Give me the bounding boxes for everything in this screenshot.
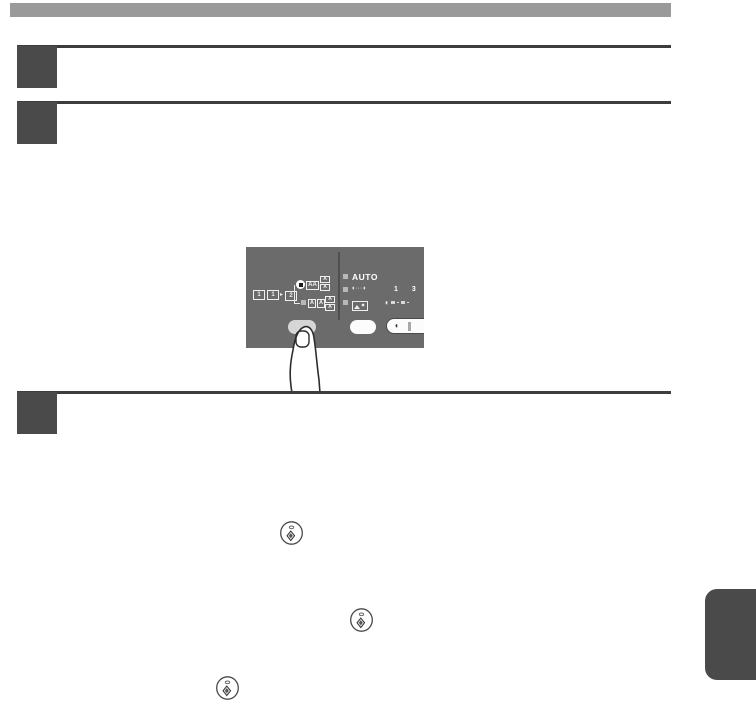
start-key-icon-3 [216,676,239,700]
exposure-scale-glyph: ◖ [384,298,389,307]
sort-mode-box: AA [306,281,319,290]
copy-page-icon-2sided: 2 [285,291,297,301]
step-2-number-square [17,102,57,144]
mode-led-dot [299,283,303,287]
sort-stack-bottom: A A [325,296,335,311]
sort-mode-label: AA [308,282,317,288]
exposure-dot-1 [397,302,399,304]
mode-led-unselected [301,300,306,305]
original-page-2-label: 1 [271,292,274,298]
original-page-1-label: 1 [257,292,260,298]
pressing-finger-illustration [283,322,331,399]
group-mode-a1: A [308,299,316,308]
start-key-icon-2 [350,608,373,632]
auto-led [343,274,348,279]
mode-arrow-icon: ▸ [280,292,283,298]
sort-stack-top: A A [320,276,330,291]
exposure-button-bar [408,322,411,331]
mode-bracket-line [294,285,295,304]
exposure-mark-3 [401,301,405,305]
group-mode-boxes: A A [308,299,325,308]
chapter-page-tab [705,589,756,680]
mode-bracket-stub [294,303,300,304]
auto-mode-label: AUTO [352,272,378,282]
step-1-number-square [17,46,57,88]
exposure-level-numbers: 1 3 [394,286,422,293]
exposure-scale: ◖ [384,298,409,307]
sort-stack-top-a2: A [320,284,330,291]
panel-divider [338,252,340,320]
group-mode-a2: A [317,299,325,308]
sort-stack-top-a1: A [320,276,330,283]
sort-stack-bottom-a2: A [325,304,335,311]
exposure-mark-1 [391,301,395,305]
mode-led-selected [296,280,305,289]
step-3-number-square [17,392,57,434]
photo-mode-icon [352,298,368,316]
manual-exposure-icon: ◖···◗ [351,285,366,292]
sort-stack-bottom-a1: A [325,296,335,303]
exposure-adjust-button: ◖ [386,318,424,334]
manual-led [343,287,348,292]
exposure-mode-button [350,320,376,334]
copier-control-panel-illustration: 1 1 ▸ 2 AA A A A A A A AUTO ◖···◗ 1 3 ◖ [246,247,424,348]
original-page-icon-2: 1 [267,290,279,300]
page-top-bar [10,3,671,17]
copy-page-label: 2 [289,293,292,299]
exposure-button-glyph: ◖ [394,319,399,333]
step-3-rule [17,391,671,394]
photo-led [343,300,348,305]
step-1-rule [17,45,671,48]
original-page-icon-1: 1 [253,290,265,300]
exposure-dot-2 [407,302,409,304]
start-key-icon-1 [280,521,303,545]
step-2-rule [17,101,671,104]
